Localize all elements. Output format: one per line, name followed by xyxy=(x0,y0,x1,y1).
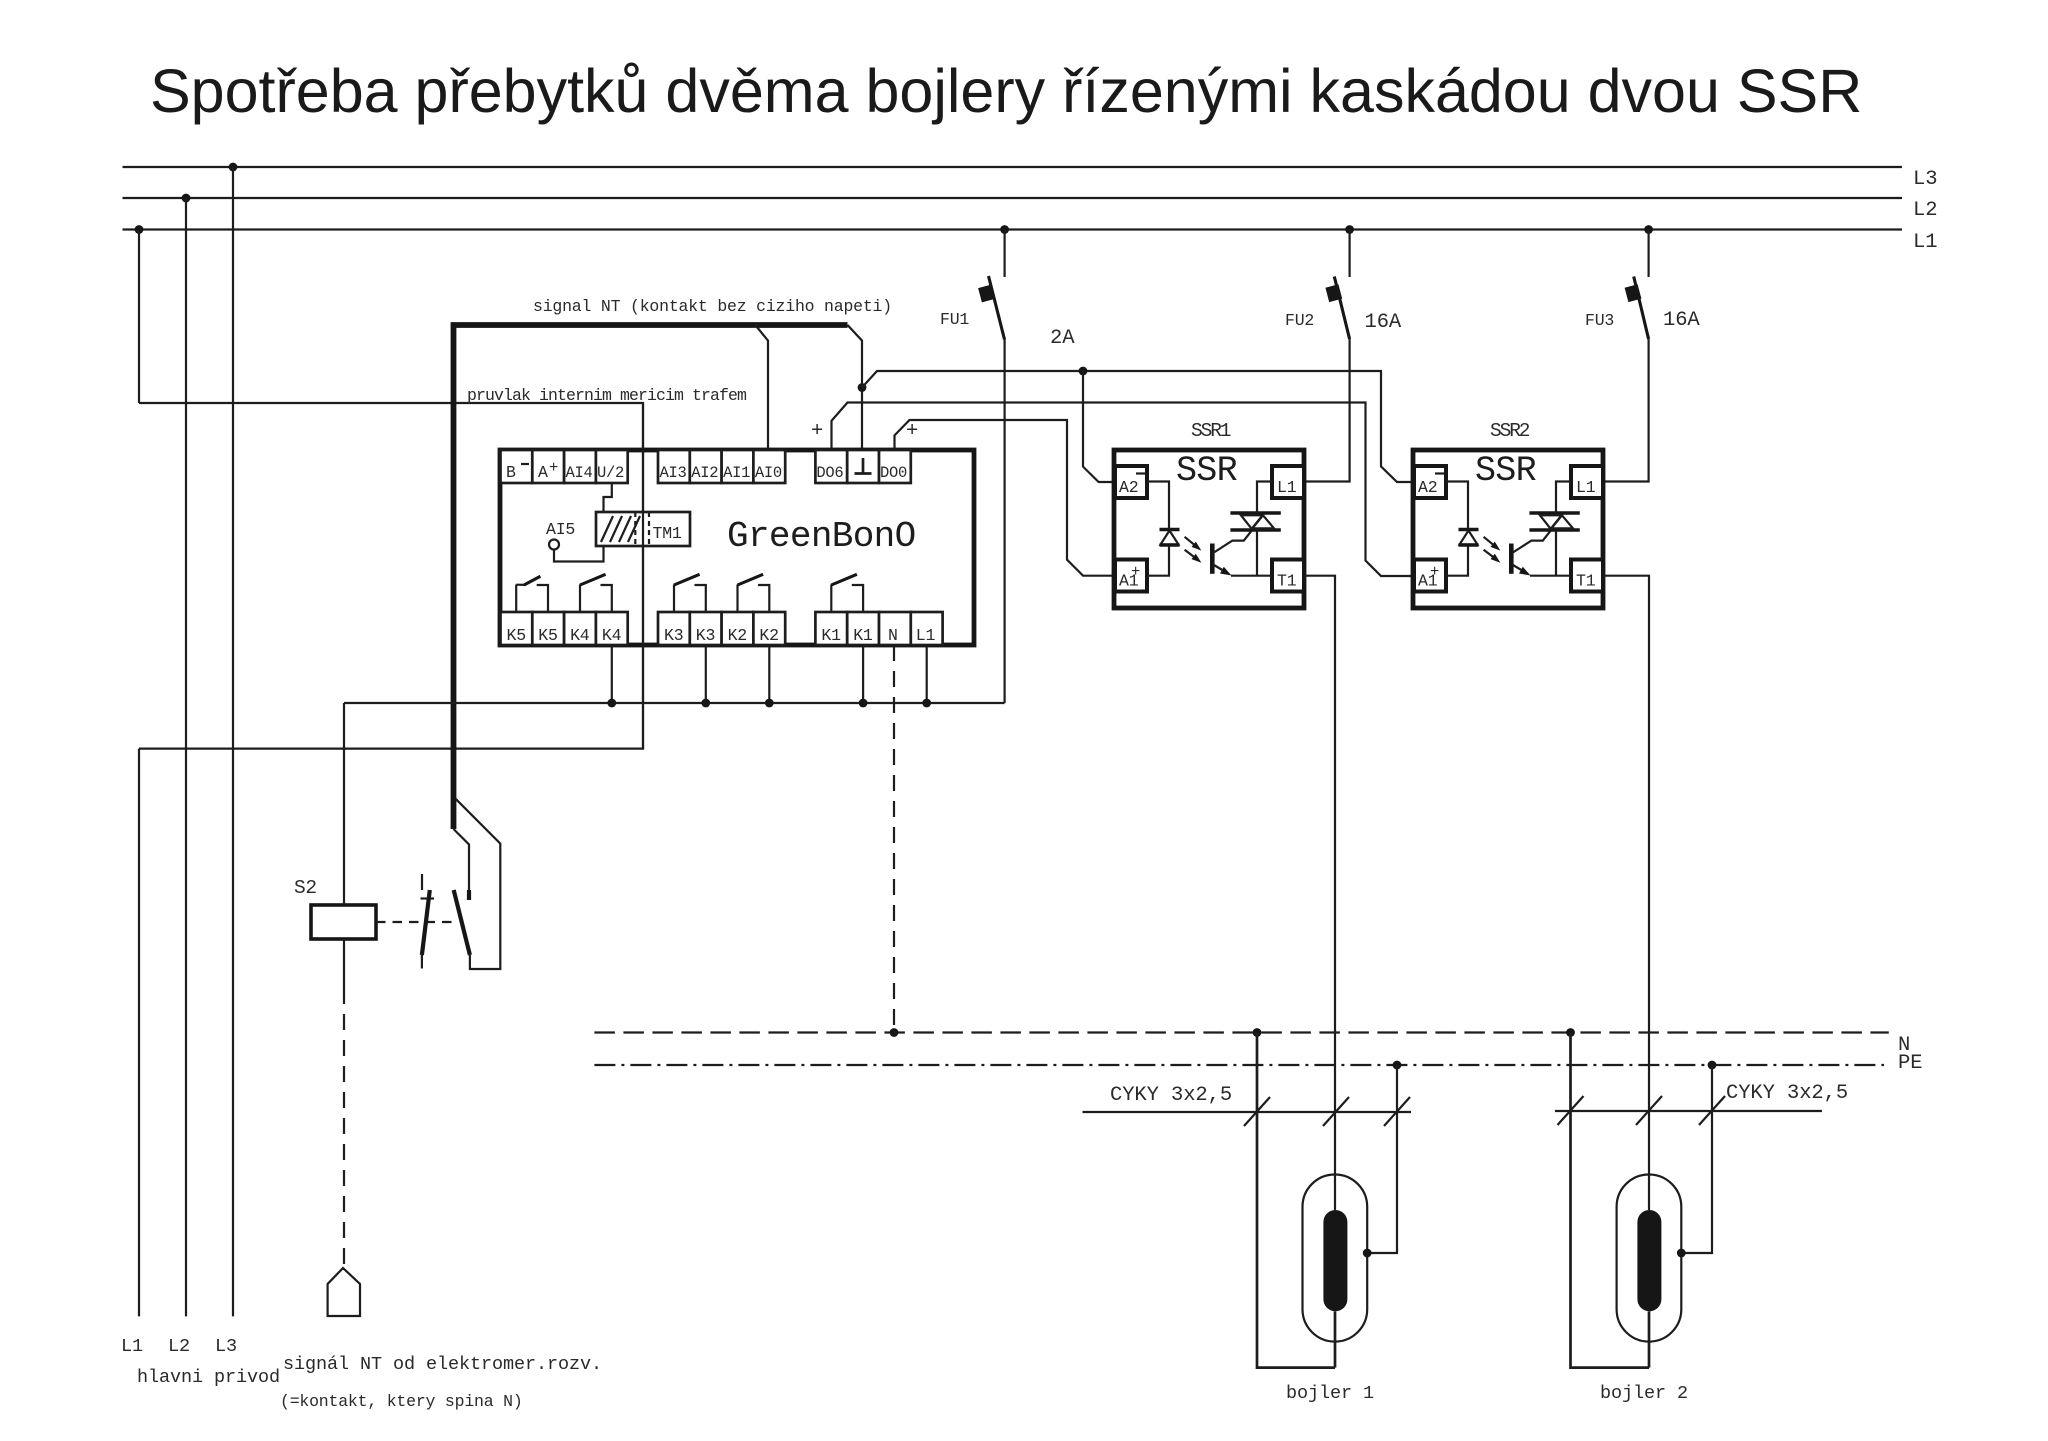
svg-text:SSR2: SSR2 xyxy=(1490,420,1530,442)
svg-text:Spotřeba přebytků dvěma bojler: Spotřeba přebytků dvěma bojlery řízenými… xyxy=(150,57,1862,125)
svg-text:AI1: AI1 xyxy=(723,464,750,482)
svg-text:CYKY 3x2,5: CYKY 3x2,5 xyxy=(1110,1084,1232,1107)
svg-text:+: + xyxy=(1131,563,1140,581)
svg-text:AI0: AI0 xyxy=(755,464,782,482)
svg-text:U/2: U/2 xyxy=(597,464,624,482)
svg-text:K5: K5 xyxy=(538,626,557,645)
svg-text:K4: K4 xyxy=(602,626,622,645)
svg-text:T1: T1 xyxy=(1277,572,1297,591)
svg-text:K1: K1 xyxy=(821,626,841,645)
svg-text:N: N xyxy=(888,626,898,645)
svg-text:pruvlak internim mericim trafe: pruvlak internim mericim trafem xyxy=(467,386,747,405)
svg-text:DO0: DO0 xyxy=(880,464,907,482)
svg-text:signál NT od elektromer.rozv.: signál NT od elektromer.rozv. xyxy=(283,1354,602,1375)
svg-text:TM1: TM1 xyxy=(653,524,682,543)
svg-text:AI4: AI4 xyxy=(566,464,593,482)
svg-text:K2: K2 xyxy=(759,626,778,645)
svg-text:K2: K2 xyxy=(728,626,747,645)
svg-text:L1: L1 xyxy=(1576,478,1596,497)
svg-text:L1: L1 xyxy=(121,1336,143,1357)
svg-text:K4: K4 xyxy=(570,626,590,645)
svg-text:signal NT (kontakt bez ciziho: signal NT (kontakt bez ciziho napeti) xyxy=(533,297,892,316)
svg-text:16A: 16A xyxy=(1663,309,1700,332)
svg-text:16A: 16A xyxy=(1365,311,1402,334)
svg-text:FU3: FU3 xyxy=(1585,311,1614,330)
svg-text:SSR: SSR xyxy=(1475,451,1537,491)
svg-text:AI3: AI3 xyxy=(660,464,687,482)
svg-text:+: + xyxy=(811,420,823,443)
svg-text:K1: K1 xyxy=(853,626,873,645)
svg-text:L3: L3 xyxy=(215,1336,237,1357)
svg-text:FU2: FU2 xyxy=(1285,311,1314,330)
svg-text:hlavni privod: hlavni privod xyxy=(137,1367,280,1388)
svg-text:PE: PE xyxy=(1898,1052,1922,1075)
svg-text:SSR1: SSR1 xyxy=(1191,420,1231,442)
svg-text:L2: L2 xyxy=(168,1336,190,1357)
svg-text:bojler 1: bojler 1 xyxy=(1286,1383,1374,1404)
svg-text:FU1: FU1 xyxy=(940,310,969,329)
svg-text:CYKY 3x2,5: CYKY 3x2,5 xyxy=(1726,1082,1848,1105)
svg-text:A2: A2 xyxy=(1418,478,1437,497)
svg-text:+: + xyxy=(1430,563,1439,581)
svg-text:(=kontakt, ktery spina N): (=kontakt, ktery spina N) xyxy=(280,1392,523,1411)
svg-text:K3: K3 xyxy=(664,626,683,645)
svg-text:L2: L2 xyxy=(1913,199,1937,222)
svg-text:S2: S2 xyxy=(294,877,317,899)
svg-text:+: + xyxy=(906,420,918,443)
svg-text:GreenBonO: GreenBonO xyxy=(727,516,916,557)
svg-text:+: + xyxy=(549,459,558,477)
svg-text:DO6: DO6 xyxy=(816,464,843,482)
svg-text:2A: 2A xyxy=(1050,327,1075,350)
svg-text:L1: L1 xyxy=(916,626,936,645)
svg-text:A2: A2 xyxy=(1119,478,1138,497)
svg-text:AI5: AI5 xyxy=(546,520,575,539)
svg-text:T1: T1 xyxy=(1576,572,1596,591)
svg-text:K3: K3 xyxy=(696,626,715,645)
svg-text:L1: L1 xyxy=(1277,478,1297,497)
svg-text:K5: K5 xyxy=(507,626,526,645)
svg-text:A: A xyxy=(538,463,548,482)
svg-text:SSR: SSR xyxy=(1176,451,1238,491)
svg-text:L1: L1 xyxy=(1913,231,1937,254)
svg-text:AI2: AI2 xyxy=(691,464,718,482)
svg-text:B: B xyxy=(506,463,516,482)
svg-text:L3: L3 xyxy=(1913,168,1937,191)
svg-text:bojler 2: bojler 2 xyxy=(1600,1383,1688,1404)
